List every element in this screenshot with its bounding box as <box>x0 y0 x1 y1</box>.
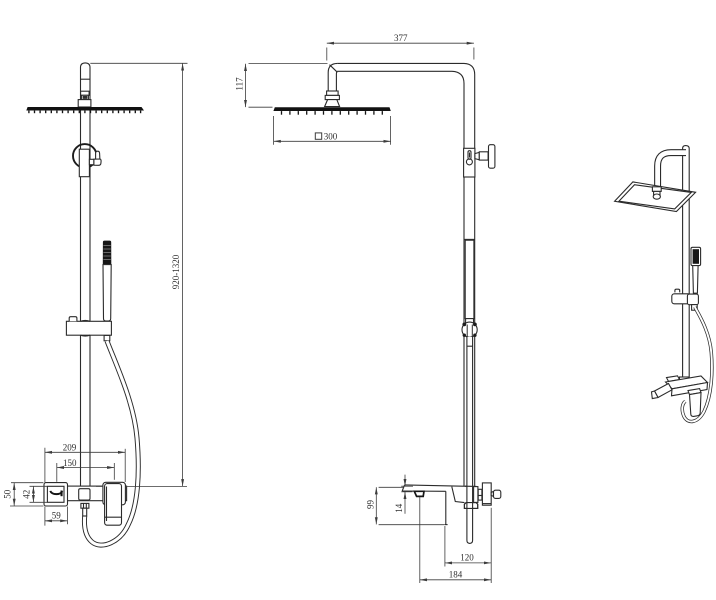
svg-text:150: 150 <box>63 458 77 468</box>
svg-text:59: 59 <box>52 510 62 520</box>
svg-text:184: 184 <box>449 570 463 580</box>
svg-text:377: 377 <box>394 33 408 43</box>
svg-text:120: 120 <box>460 553 474 563</box>
svg-text:50: 50 <box>2 489 12 499</box>
svg-text:99: 99 <box>366 500 376 510</box>
svg-text:300: 300 <box>324 132 338 142</box>
svg-text:920-1320: 920-1320 <box>171 254 181 289</box>
svg-text:209: 209 <box>63 443 77 453</box>
svg-text:14: 14 <box>394 503 404 513</box>
svg-text:42: 42 <box>21 490 31 499</box>
svg-text:117: 117 <box>235 77 245 91</box>
